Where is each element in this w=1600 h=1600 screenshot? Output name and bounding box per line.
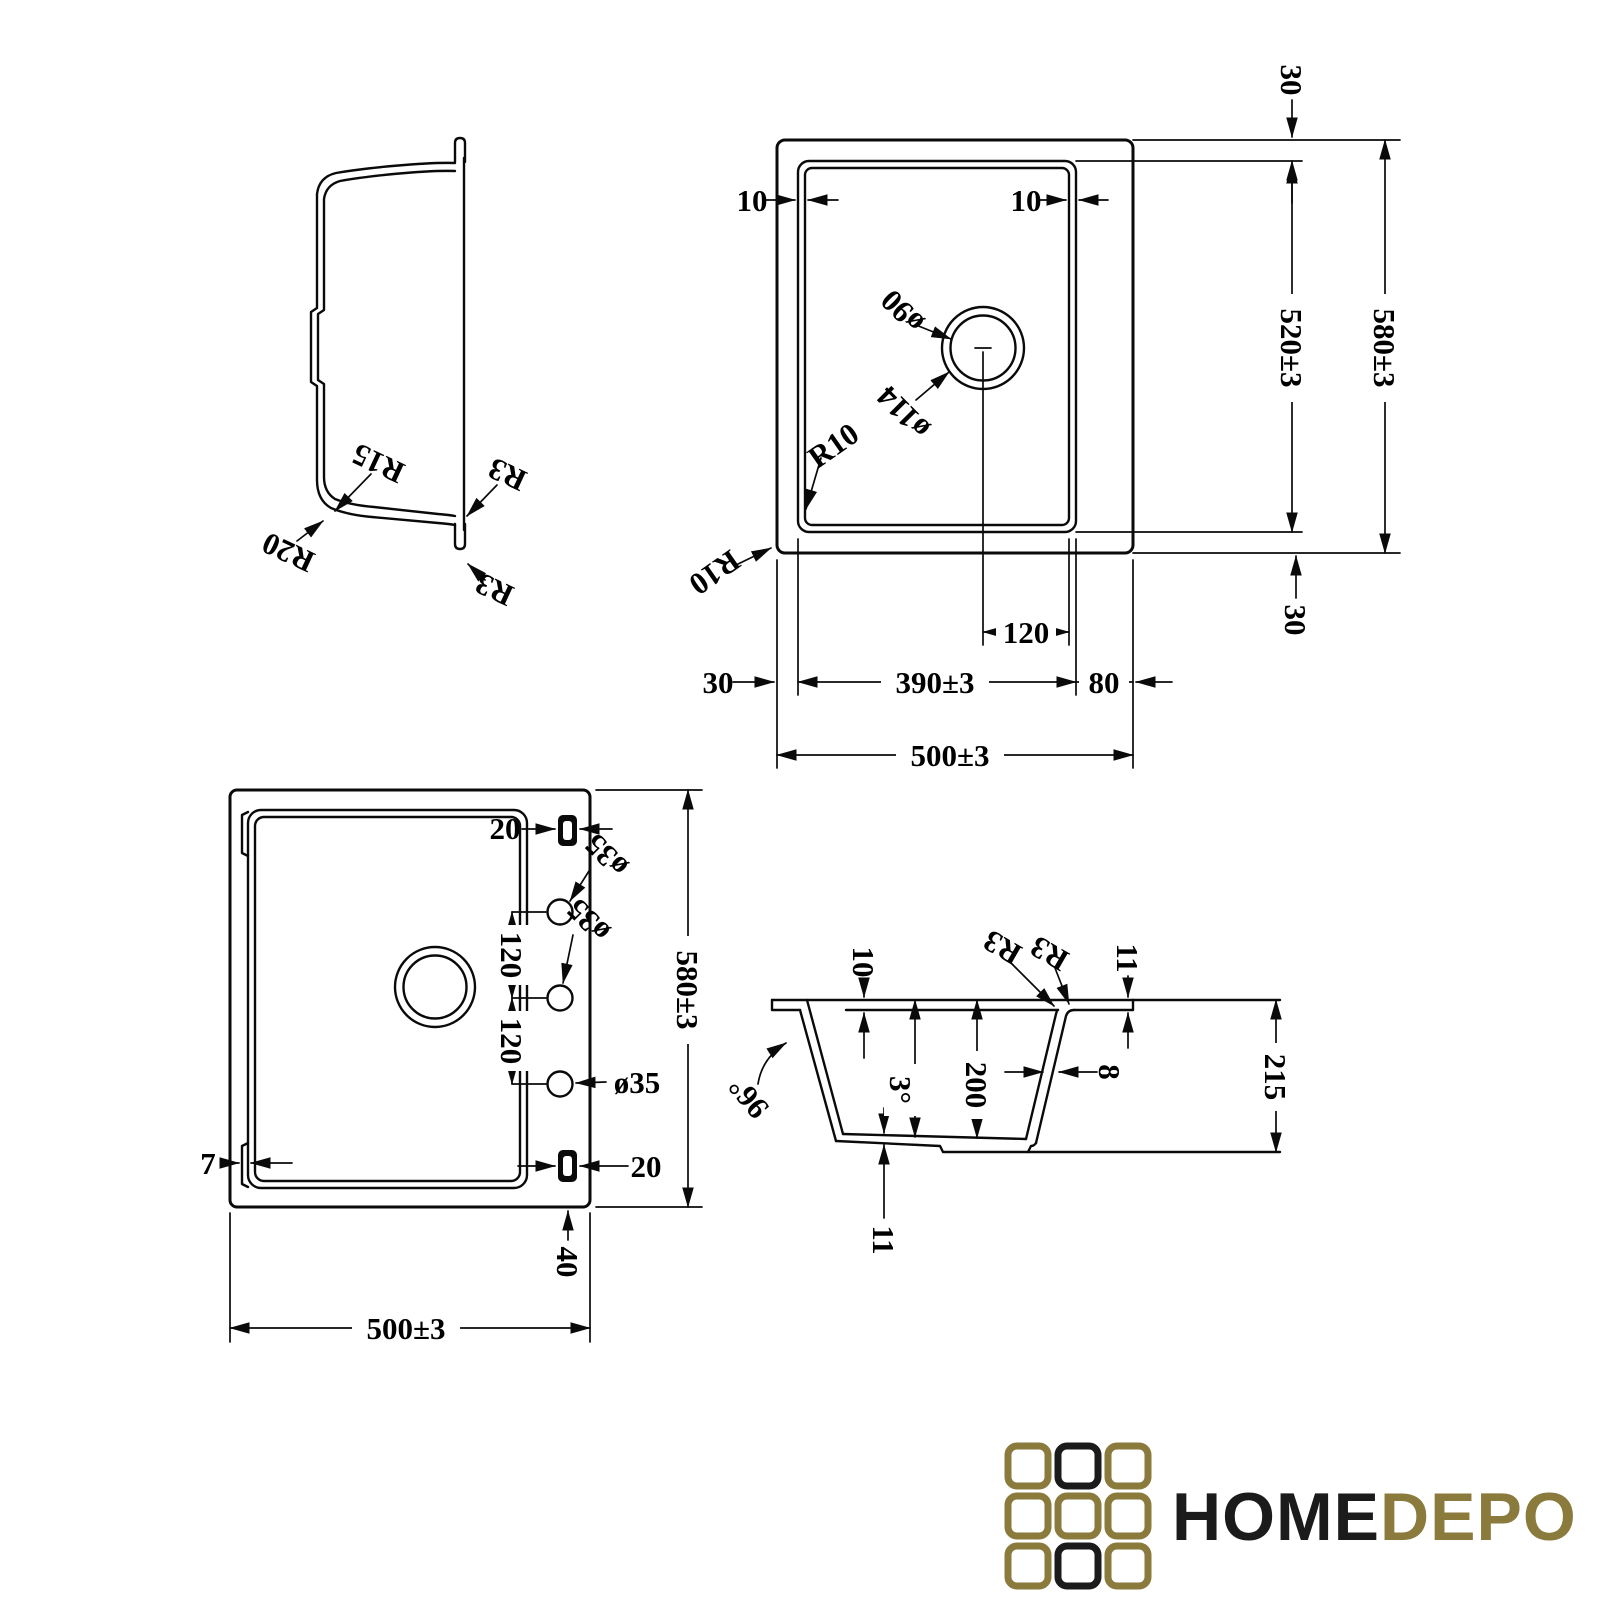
dim-bowl-depth: 200 [959, 1062, 994, 1109]
logo-grid-cell [1108, 1496, 1148, 1536]
dim-overall-width: 500±3 [910, 738, 989, 773]
logo-grid-cell [1108, 1546, 1148, 1586]
logo-word-home: HOME [1172, 1479, 1380, 1555]
leader-line [916, 372, 949, 400]
logo-grid-cell [1008, 1496, 1048, 1536]
leader-line [297, 521, 323, 541]
drain-hole-circle [404, 956, 467, 1019]
tap-hole [548, 1072, 573, 1097]
side-profile-view: R15 R20 R3 R3 [257, 138, 532, 614]
dim-corner-outer: R10 [683, 543, 747, 602]
logo-grid-cell [1058, 1446, 1098, 1486]
dim-clip-bottom: 20 [631, 1149, 662, 1184]
dim-rim-left: 10 [737, 183, 768, 218]
dim-drain-offset: 120 [1003, 615, 1050, 650]
logo-grid-cell [1108, 1446, 1148, 1486]
left-wall-outer [800, 1010, 836, 1141]
left-rim-cap [772, 1000, 800, 1010]
dim-bottom-thickness: 11 [866, 1225, 901, 1254]
dim-wall-thickness: 8 [1092, 1064, 1127, 1080]
dim-r15: R15 [347, 437, 410, 491]
bowl-rim-inner [805, 168, 1069, 525]
dim-edge-left: 30 [703, 665, 734, 700]
right-lip-underside [1074, 1000, 1133, 1010]
logo-grid-cell [1008, 1446, 1048, 1486]
leader-line [758, 1043, 786, 1084]
bowl-outer [248, 810, 527, 1188]
logo-grid-cell [1058, 1496, 1098, 1536]
sink-outer-edge [777, 140, 1133, 553]
dim-ledge: 40 [550, 1247, 585, 1278]
dim-drain-flange: ø114 [870, 379, 937, 446]
dim-radius-outer: R3 [1024, 929, 1074, 978]
dim-spacing-1: 120 [494, 932, 529, 979]
leader-line [563, 935, 573, 983]
dim-overall-depth: 215 [1258, 1054, 1293, 1101]
top-view: 10 10 30 520±3 580±3 30 30 390±3 80 500±… [683, 65, 1402, 773]
dim-tap-hole-3: ø35 [614, 1065, 661, 1100]
drain-flange-circle [395, 947, 475, 1027]
dim-spacing-2: 120 [494, 1018, 529, 1065]
section-outline [772, 1000, 1280, 1152]
dim-clip-top: 20 [490, 811, 521, 846]
bottom-inner [843, 1134, 1026, 1139]
dim-edge-bottom: 30 [1278, 605, 1313, 636]
dim-drain-hole: ø90 [873, 283, 931, 341]
dim-overall-length: 580±3 [670, 950, 705, 1029]
logo-word-depo: DEPO [1380, 1479, 1577, 1555]
technical-drawing-page: R15 R20 R3 R3 [0, 0, 1600, 1600]
bottom-view: 20 ø35 ø35 ø35 120 120 7 20 40 500±3 580… [200, 790, 705, 1346]
dim-lip-height: 11 [1110, 943, 1145, 972]
dim-bowl-width: 390±3 [895, 665, 974, 700]
clip-bottom-slot [563, 1156, 572, 1176]
logo: HOMEDEPO [1008, 1446, 1577, 1586]
logo-grid-cell [1058, 1546, 1098, 1586]
dim-bowl-length: 520±3 [1274, 308, 1309, 387]
dim-overall-width: 500±3 [366, 1311, 445, 1346]
dim-deck-right: 80 [1089, 665, 1120, 700]
bottom-outer [836, 1141, 1036, 1152]
dim-rim-depth: 10 [846, 947, 881, 978]
dim-tap-hole-2: ø35 [559, 892, 617, 950]
dim-draft-angle: 3° [883, 1076, 918, 1104]
left-wall-inner [807, 1000, 843, 1134]
dim-radius-inner: R3 [977, 923, 1027, 972]
clip-top-slot [563, 821, 572, 840]
dim-r20: R20 [257, 526, 320, 580]
sink-technical-drawing: R15 R20 R3 R3 [0, 0, 1600, 1600]
dim-rim-right: 10 [1011, 183, 1042, 218]
tap-hole [548, 986, 573, 1011]
bottom-view-bowl [242, 810, 573, 1188]
dim-corner-bowl: R10 [801, 416, 865, 475]
logo-grid [1008, 1446, 1148, 1586]
dim-edge-top: 30 [1274, 65, 1309, 96]
top-view-outline [777, 140, 1133, 553]
section-view: 10 R3 R3 11 96° 3° 200 8 215 11 [721, 923, 1293, 1255]
fixing-clips [558, 815, 577, 1182]
logo-grid-cell [1008, 1546, 1048, 1586]
leader-line [467, 485, 497, 516]
logo-wordmark: HOMEDEPO [1172, 1479, 1577, 1555]
dim-overall-length: 580±3 [1367, 308, 1402, 387]
bowl-inner [255, 817, 520, 1181]
dim-wall-angle: 96° [721, 1070, 776, 1126]
dim-rim-lip: 7 [200, 1146, 216, 1181]
leader-line [576, 1082, 606, 1083]
